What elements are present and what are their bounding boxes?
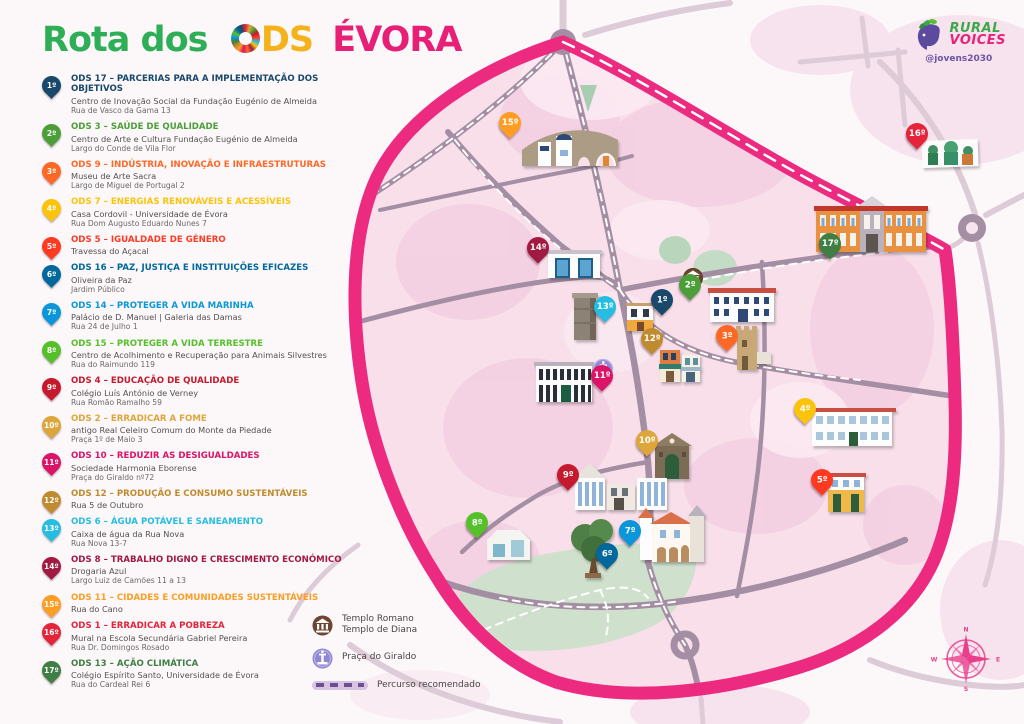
stop-text-8: ODS 15 – PROTEGER A VIDA TERRESTRECentro… xyxy=(71,339,327,370)
logo-handle: @jovens2030 xyxy=(911,54,1006,64)
stop-text-4: ODS 7 – ENERGIAS RENOVÁVEIS E ACESSÍVEIS… xyxy=(71,197,291,228)
map-legend: Templo Romano Templo de Diana Praça do G… xyxy=(312,614,481,691)
stop-text-15: ODS 11 – CIDADES E COMUNIDADES SUSTENTÁV… xyxy=(71,593,318,614)
mural-gabriel-pereira-illustration xyxy=(922,139,979,168)
stop-heading: ODS 3 – SAÚDE DE QUALIDADE xyxy=(71,122,298,132)
compass-e: E xyxy=(996,657,1000,664)
stop-item-15: 15ºODS 11 – CIDADES E COMUNIDADES SUSTEN… xyxy=(42,593,357,614)
roman-temple-icon xyxy=(312,615,333,636)
stop-pin-icon-14: 14º xyxy=(38,553,65,580)
stop-text-2: ODS 3 – SAÚDE DE QUALIDADECentro de Arte… xyxy=(71,122,298,153)
stop-heading: ODS 8 – TRABALHO DIGNO E CRESCIMENTO ECO… xyxy=(71,555,342,565)
drogaria-azul-illustration xyxy=(546,250,602,278)
stop-address: Jardim Público xyxy=(71,285,308,294)
stop-item-10: 10ºODS 2 – ERRADICAR A FOMEantigo Real C… xyxy=(42,414,357,445)
water-tower-illustration xyxy=(572,293,598,340)
fountain-icon xyxy=(312,648,333,669)
stops-list: 1ºODS 17 – PARCERIAS PARA A IMPLEMENTAÇÃ… xyxy=(42,74,357,689)
stop-heading: ODS 13 – AÇÃO CLIMÁTICA xyxy=(71,659,259,669)
head-with-leaves-icon xyxy=(911,18,945,52)
compass-w: W xyxy=(931,657,938,664)
stop-name: Caixa de água da Rua Nova xyxy=(71,529,263,539)
stop-text-3: ODS 9 – INDÚSTRIA, INOVAÇÃO E INFRAESTRU… xyxy=(71,160,326,191)
stop-text-7: ODS 14 – PROTEGER A VIDA MARINHAPalácio … xyxy=(71,301,254,332)
stop-item-2: 2ºODS 3 – SAÚDE DE QUALIDADECentro de Ar… xyxy=(42,122,357,153)
stop-name: Oliveira da Paz xyxy=(71,275,308,285)
stop-name: Sociedade Harmonia Eborense xyxy=(71,463,260,473)
stop-text-14: ODS 8 – TRABALHO DIGNO E CRESCIMENTO ECO… xyxy=(71,555,342,586)
stop-item-17: 17ºODS 13 – AÇÃO CLIMÁTICAColégio Espíri… xyxy=(42,659,357,690)
stop-heading: ODS 11 – CIDADES E COMUNIDADES SUSTENTÁV… xyxy=(71,593,318,603)
stop-heading: ODS 4 – EDUCAÇÃO DE QUALIDADE xyxy=(71,376,239,386)
poster-rota-dos-ods-evora: N S W E Rota dos DS ÉVORA RURAL VOICES @… xyxy=(0,0,1024,724)
stop-name: antigo Real Celeiro Comum do Monte da Pi… xyxy=(71,425,272,435)
stop-name: Rua 5 de Outubro xyxy=(71,500,308,510)
logo-voices-text: VOICES xyxy=(949,35,1006,47)
stop-heading: ODS 12 – PRODUÇÃO E CONSUMO SUSTENTÁVEIS xyxy=(71,489,308,499)
stop-heading: ODS 9 – INDÚSTRIA, INOVAÇÃO E INFRAESTRU… xyxy=(71,160,326,170)
stop-address: Rua do Raimundo 119 xyxy=(71,360,327,369)
stop-heading: ODS 1 – ERRADICAR A POBREZA xyxy=(71,621,247,631)
stop-address: Rua Romão Ramalho 59 xyxy=(71,398,239,407)
stop-name: Casa Cordovil - Universidade de Évora xyxy=(71,209,291,219)
stop-pin-icon-4: 4º xyxy=(38,195,65,222)
stop-text-11: ODS 10 – REDUZIR AS DESIGUALDADESSocieda… xyxy=(71,451,260,482)
stop-address: Largo Luiz de Camões 11 a 13 xyxy=(71,576,342,585)
stop-pin-icon-11: 11º xyxy=(38,449,65,476)
stop-pin-icon-3: 3º xyxy=(38,158,65,185)
stop-pin-icon-17: 17º xyxy=(38,657,65,684)
stop-pin-icon-13: 13º xyxy=(38,515,65,542)
legend-temple-line1: Templo Romano xyxy=(342,614,417,625)
stop-item-12: 12ºODS 12 – PRODUÇÃO E CONSUMO SUSTENTÁV… xyxy=(42,489,357,510)
stop-heading: ODS 14 – PROTEGER A VIDA MARINHA xyxy=(71,301,254,311)
stop-item-4: 4ºODS 7 – ENERGIAS RENOVÁVEIS E ACESSÍVE… xyxy=(42,197,357,228)
stop-item-16: 16ºODS 1 – ERRADICAR A POBREZAMural na E… xyxy=(42,621,357,652)
stop-name: Mural na Escola Secundária Gabriel Perei… xyxy=(71,633,247,643)
stop-pin-icon-1: 1º xyxy=(38,72,65,99)
stop-text-5: ODS 5 – IGUALDADE DE GÉNEROTravessa do A… xyxy=(71,235,226,256)
dashed-line-sample-icon xyxy=(312,681,368,690)
stop-heading: ODS 5 – IGUALDADE DE GÉNERO xyxy=(71,235,226,245)
stop-name: Colégio Espírito Santo, Universidade de … xyxy=(71,670,259,680)
stop-heading: ODS 6 – ÁGUA POTÁVEL E SANEAMENTO xyxy=(71,517,263,527)
casa-cordovil-illustration xyxy=(810,408,896,446)
stop-name: Centro de Acolhimento e Recuperação para… xyxy=(71,350,327,360)
stop-item-1: 1ºODS 17 – PARCERIAS PARA A IMPLEMENTAÇÃ… xyxy=(42,74,357,115)
stop-heading: ODS 10 – REDUZIR AS DESIGUALDADES xyxy=(71,451,260,461)
stop-item-6: 6ºODS 16 – PAZ, JUSTIÇA E INSTITUIÇÕES E… xyxy=(42,263,357,294)
stop-pin-icon-12: 12º xyxy=(38,487,65,514)
stop-pin-icon-15: 15º xyxy=(38,591,65,618)
stop-item-8: 8ºODS 15 – PROTEGER A VIDA TERRESTRECent… xyxy=(42,339,357,370)
stop-item-5: 5ºODS 5 – IGUALDADE DE GÉNEROTravessa do… xyxy=(42,235,357,256)
stop-heading: ODS 2 – ERRADICAR A FOME xyxy=(71,414,272,424)
stop-pin-icon-2: 2º xyxy=(38,120,65,147)
stop-address: Rua Nova 13-7 xyxy=(71,539,263,548)
stop-name: Centro de Inovação Social da Fundação Eu… xyxy=(71,96,357,106)
stop-name: Museu de Arte Sacra xyxy=(71,171,326,181)
stop-name: Drogaria Azul xyxy=(71,566,342,576)
stop-pin-icon-7: 7º xyxy=(38,299,65,326)
stop-address: Rua 24 de Julho 1 xyxy=(71,322,254,331)
rural-voices-logo: RURAL VOICES @jovens2030 xyxy=(911,18,1006,64)
stop-name: Rua do Cano xyxy=(71,604,318,614)
legend-temple-line2: Templo de Diana xyxy=(342,625,417,636)
stop-address: Largo do Conde de Vila Flor xyxy=(71,144,298,153)
sdg-wheel-icon xyxy=(231,24,260,53)
legend-route-row: Percurso recomendado xyxy=(312,680,481,691)
stop-text-13: ODS 6 – ÁGUA POTÁVEL E SANEAMENTOCaixa d… xyxy=(71,517,263,548)
stop-heading: ODS 7 – ENERGIAS RENOVÁVEIS E ACESSÍVEIS xyxy=(71,197,291,207)
stop-item-13: 13ºODS 6 – ÁGUA POTÁVEL E SANEAMENTOCaix… xyxy=(42,517,357,548)
stop-pin-icon-9: 9º xyxy=(38,374,65,401)
stop-name: Colégio Luís António de Verney xyxy=(71,388,239,398)
stop-text-9: ODS 4 – EDUCAÇÃO DE QUALIDADEColégio Luí… xyxy=(71,376,239,407)
stop-pin-icon-8: 8º xyxy=(38,337,65,364)
stop-pin-icon-16: 16º xyxy=(38,619,65,646)
stop-heading: ODS 17 – PARCERIAS PARA A IMPLEMENTAÇÃO … xyxy=(71,74,357,95)
page-title: Rota dos DS ÉVORA xyxy=(42,20,461,60)
stop-text-10: ODS 2 – ERRADICAR A FOMEantigo Real Cele… xyxy=(71,414,272,445)
title-rota-dos: Rota dos xyxy=(42,20,207,60)
title-ds: DS xyxy=(261,20,313,60)
harmonia-eborense-illustration xyxy=(534,362,594,402)
legend-route-label: Percurso recomendado xyxy=(377,680,481,691)
legend-temple-row: Templo Romano Templo de Diana xyxy=(312,614,481,637)
stop-address: Rua do Cardeal Rei 6 xyxy=(71,680,259,689)
stop-item-14: 14ºODS 8 – TRABALHO DIGNO E CRESCIMENTO … xyxy=(42,555,357,586)
centro-arte-cultura-illustration xyxy=(708,288,776,322)
stop-address: Rua de Vasco da Gama 13 xyxy=(71,106,357,115)
compass-s: S xyxy=(964,686,968,693)
palacio-d-manuel-illustration xyxy=(638,505,706,562)
compass-n: N xyxy=(963,627,968,634)
stop-heading: ODS 15 – PROTEGER A VIDA TERRESTRE xyxy=(71,339,327,349)
stop-address: Rua Dr. Domingos Rosado xyxy=(71,643,247,652)
stop-text-1: ODS 17 – PARCERIAS PARA A IMPLEMENTAÇÃO … xyxy=(71,74,357,115)
stop-name: Palácio de D. Manuel | Galeria das Damas xyxy=(71,312,254,322)
stop-pin-icon-6: 6º xyxy=(38,261,65,288)
centro-animais-illustration xyxy=(487,530,530,560)
stop-item-11: 11ºODS 10 – REDUZIR AS DESIGUALDADESSoci… xyxy=(42,451,357,482)
stop-item-3: 3ºODS 9 – INDÚSTRIA, INOVAÇÃO E INFRAEST… xyxy=(42,160,357,191)
stop-text-17: ODS 13 – AÇÃO CLIMÁTICAColégio Espírito … xyxy=(71,659,259,690)
stop-text-12: ODS 12 – PRODUÇÃO E CONSUMO SUSTENTÁVEIS… xyxy=(71,489,308,510)
title-evora: ÉVORA xyxy=(332,20,461,60)
stop-address: Rua Dom Augusto Eduardo Nunes 7 xyxy=(71,219,291,228)
stop-item-9: 9ºODS 4 – EDUCAÇÃO DE QUALIDADEColégio L… xyxy=(42,376,357,407)
legend-giraldo-row: Praça do Giraldo xyxy=(312,648,481,669)
stop-address: Largo de Miguel de Portugal 2 xyxy=(71,181,326,190)
stop-pin-icon-10: 10º xyxy=(38,412,65,439)
stop-item-7: 7ºODS 14 – PROTEGER A VIDA MARINHAPaláci… xyxy=(42,301,357,332)
stop-heading: ODS 16 – PAZ, JUSTIÇA E INSTITUIÇÕES EFI… xyxy=(71,263,308,273)
stop-address: Praça do Giraldo nº72 xyxy=(71,473,260,482)
stop-text-16: ODS 1 – ERRADICAR A POBREZAMural na Esco… xyxy=(71,621,247,652)
stop-pin-icon-5: 5º xyxy=(38,233,65,260)
stop-name: Centro de Arte e Cultura Fundação Eugéni… xyxy=(71,134,298,144)
stop-name: Travessa do Açacal xyxy=(71,246,226,256)
stop-address: Praça 1º de Maio 3 xyxy=(71,435,272,444)
legend-giraldo-label: Praça do Giraldo xyxy=(342,652,416,663)
stop-text-6: ODS 16 – PAZ, JUSTIÇA E INSTITUIÇÕES EFI… xyxy=(71,263,308,294)
